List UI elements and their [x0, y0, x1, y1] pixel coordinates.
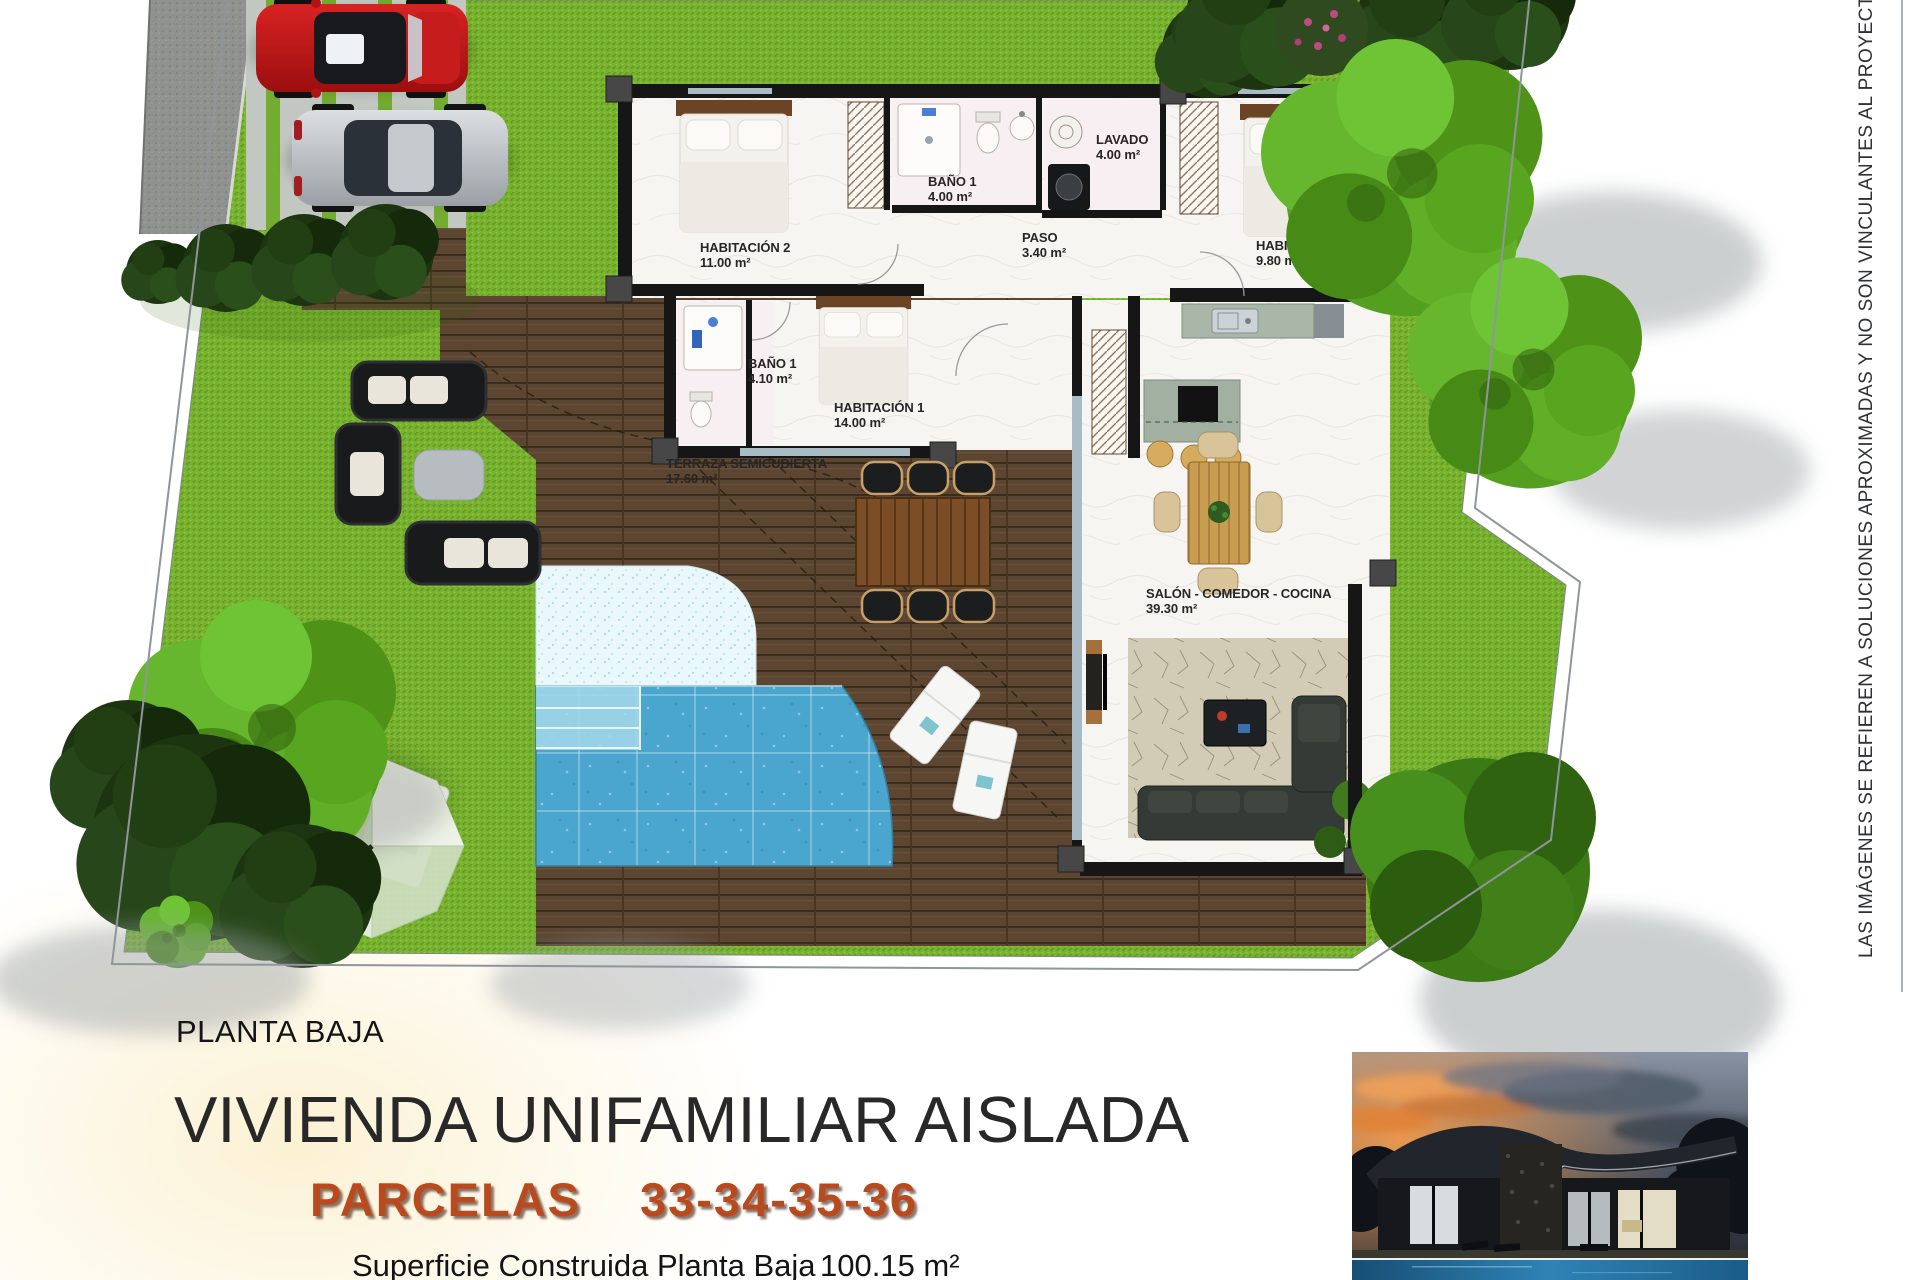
- pool-shallow: [536, 566, 756, 690]
- bed-habitacion-1: [816, 296, 911, 404]
- outdoor-dining-set: [856, 462, 994, 622]
- svg-text:4.10 m²: 4.10 m²: [748, 371, 793, 386]
- svg-text:4.00 m²: 4.00 m²: [1096, 147, 1141, 162]
- disclaimer-text: LAS IMÁGENES SE REFIEREN A SOLUCIONES AP…: [1856, 0, 1878, 958]
- room-label-bano-1-lower: BAÑO 1 4.10 m²: [748, 356, 797, 386]
- car-red: [250, 0, 474, 98]
- plan-sheet: HABITACIÓN 2 11.00 m² BAÑO 1 4.00 m² LAV…: [0, 0, 1920, 1280]
- floor-label: PLANTA BAJA: [176, 1014, 384, 1050]
- parcels-line: PARCELAS 33-34-35-36: [0, 1172, 1920, 1232]
- main-title: VIVIENDA UNIFAMILIAR AISLADA: [174, 1082, 1189, 1157]
- bed-habitacion-2: [676, 100, 792, 232]
- room-label-bano-1-top: BAÑO 1 4.00 m²: [928, 174, 977, 204]
- svg-text:LAVADO: LAVADO: [1096, 132, 1148, 147]
- svg-text:14.00 m²: 14.00 m²: [834, 415, 886, 430]
- svg-text:HABITACIÓN 1: HABITACIÓN 1: [834, 400, 924, 415]
- svg-text:17.60 m²: 17.60 m²: [666, 471, 718, 486]
- surface-value: 100.15 m²: [820, 1248, 960, 1280]
- svg-text:BAÑO 1: BAÑO 1: [748, 356, 797, 371]
- svg-text:TERRAZA SEMICUBIERTA: TERRAZA SEMICUBIERTA: [666, 456, 828, 471]
- parcels-numbers: 33-34-35-36: [640, 1172, 918, 1227]
- disclaimer-vertical: LAS IMÁGENES SE REFIEREN A SOLUCIONES AP…: [1856, 0, 1892, 958]
- car-silver: [286, 104, 514, 212]
- living-room: [1086, 638, 1374, 860]
- house-photo: [1352, 1052, 1748, 1280]
- svg-text:HABITACIÓN 2: HABITACIÓN 2: [700, 240, 790, 255]
- parcels-label: PARCELAS: [310, 1172, 581, 1227]
- svg-text:SALÓN - COMEDOR - COCINA: SALÓN - COMEDOR - COCINA: [1146, 586, 1332, 601]
- svg-text:11.00 m²: 11.00 m²: [700, 255, 751, 270]
- svg-text:39.30 m²: 39.30 m²: [1146, 601, 1198, 616]
- surface-label: Superficie Construida Planta Baja: [352, 1248, 816, 1280]
- svg-text:BAÑO 1: BAÑO 1: [928, 174, 977, 189]
- wardrobe: [1092, 330, 1126, 454]
- page-border-rule: [1901, 0, 1903, 992]
- svg-text:3.40 m²: 3.40 m²: [1022, 245, 1067, 260]
- svg-text:4.00 m²: 4.00 m²: [928, 189, 973, 204]
- svg-text:PASO: PASO: [1022, 230, 1057, 245]
- wardrobe: [848, 102, 884, 208]
- wardrobe: [1180, 102, 1218, 214]
